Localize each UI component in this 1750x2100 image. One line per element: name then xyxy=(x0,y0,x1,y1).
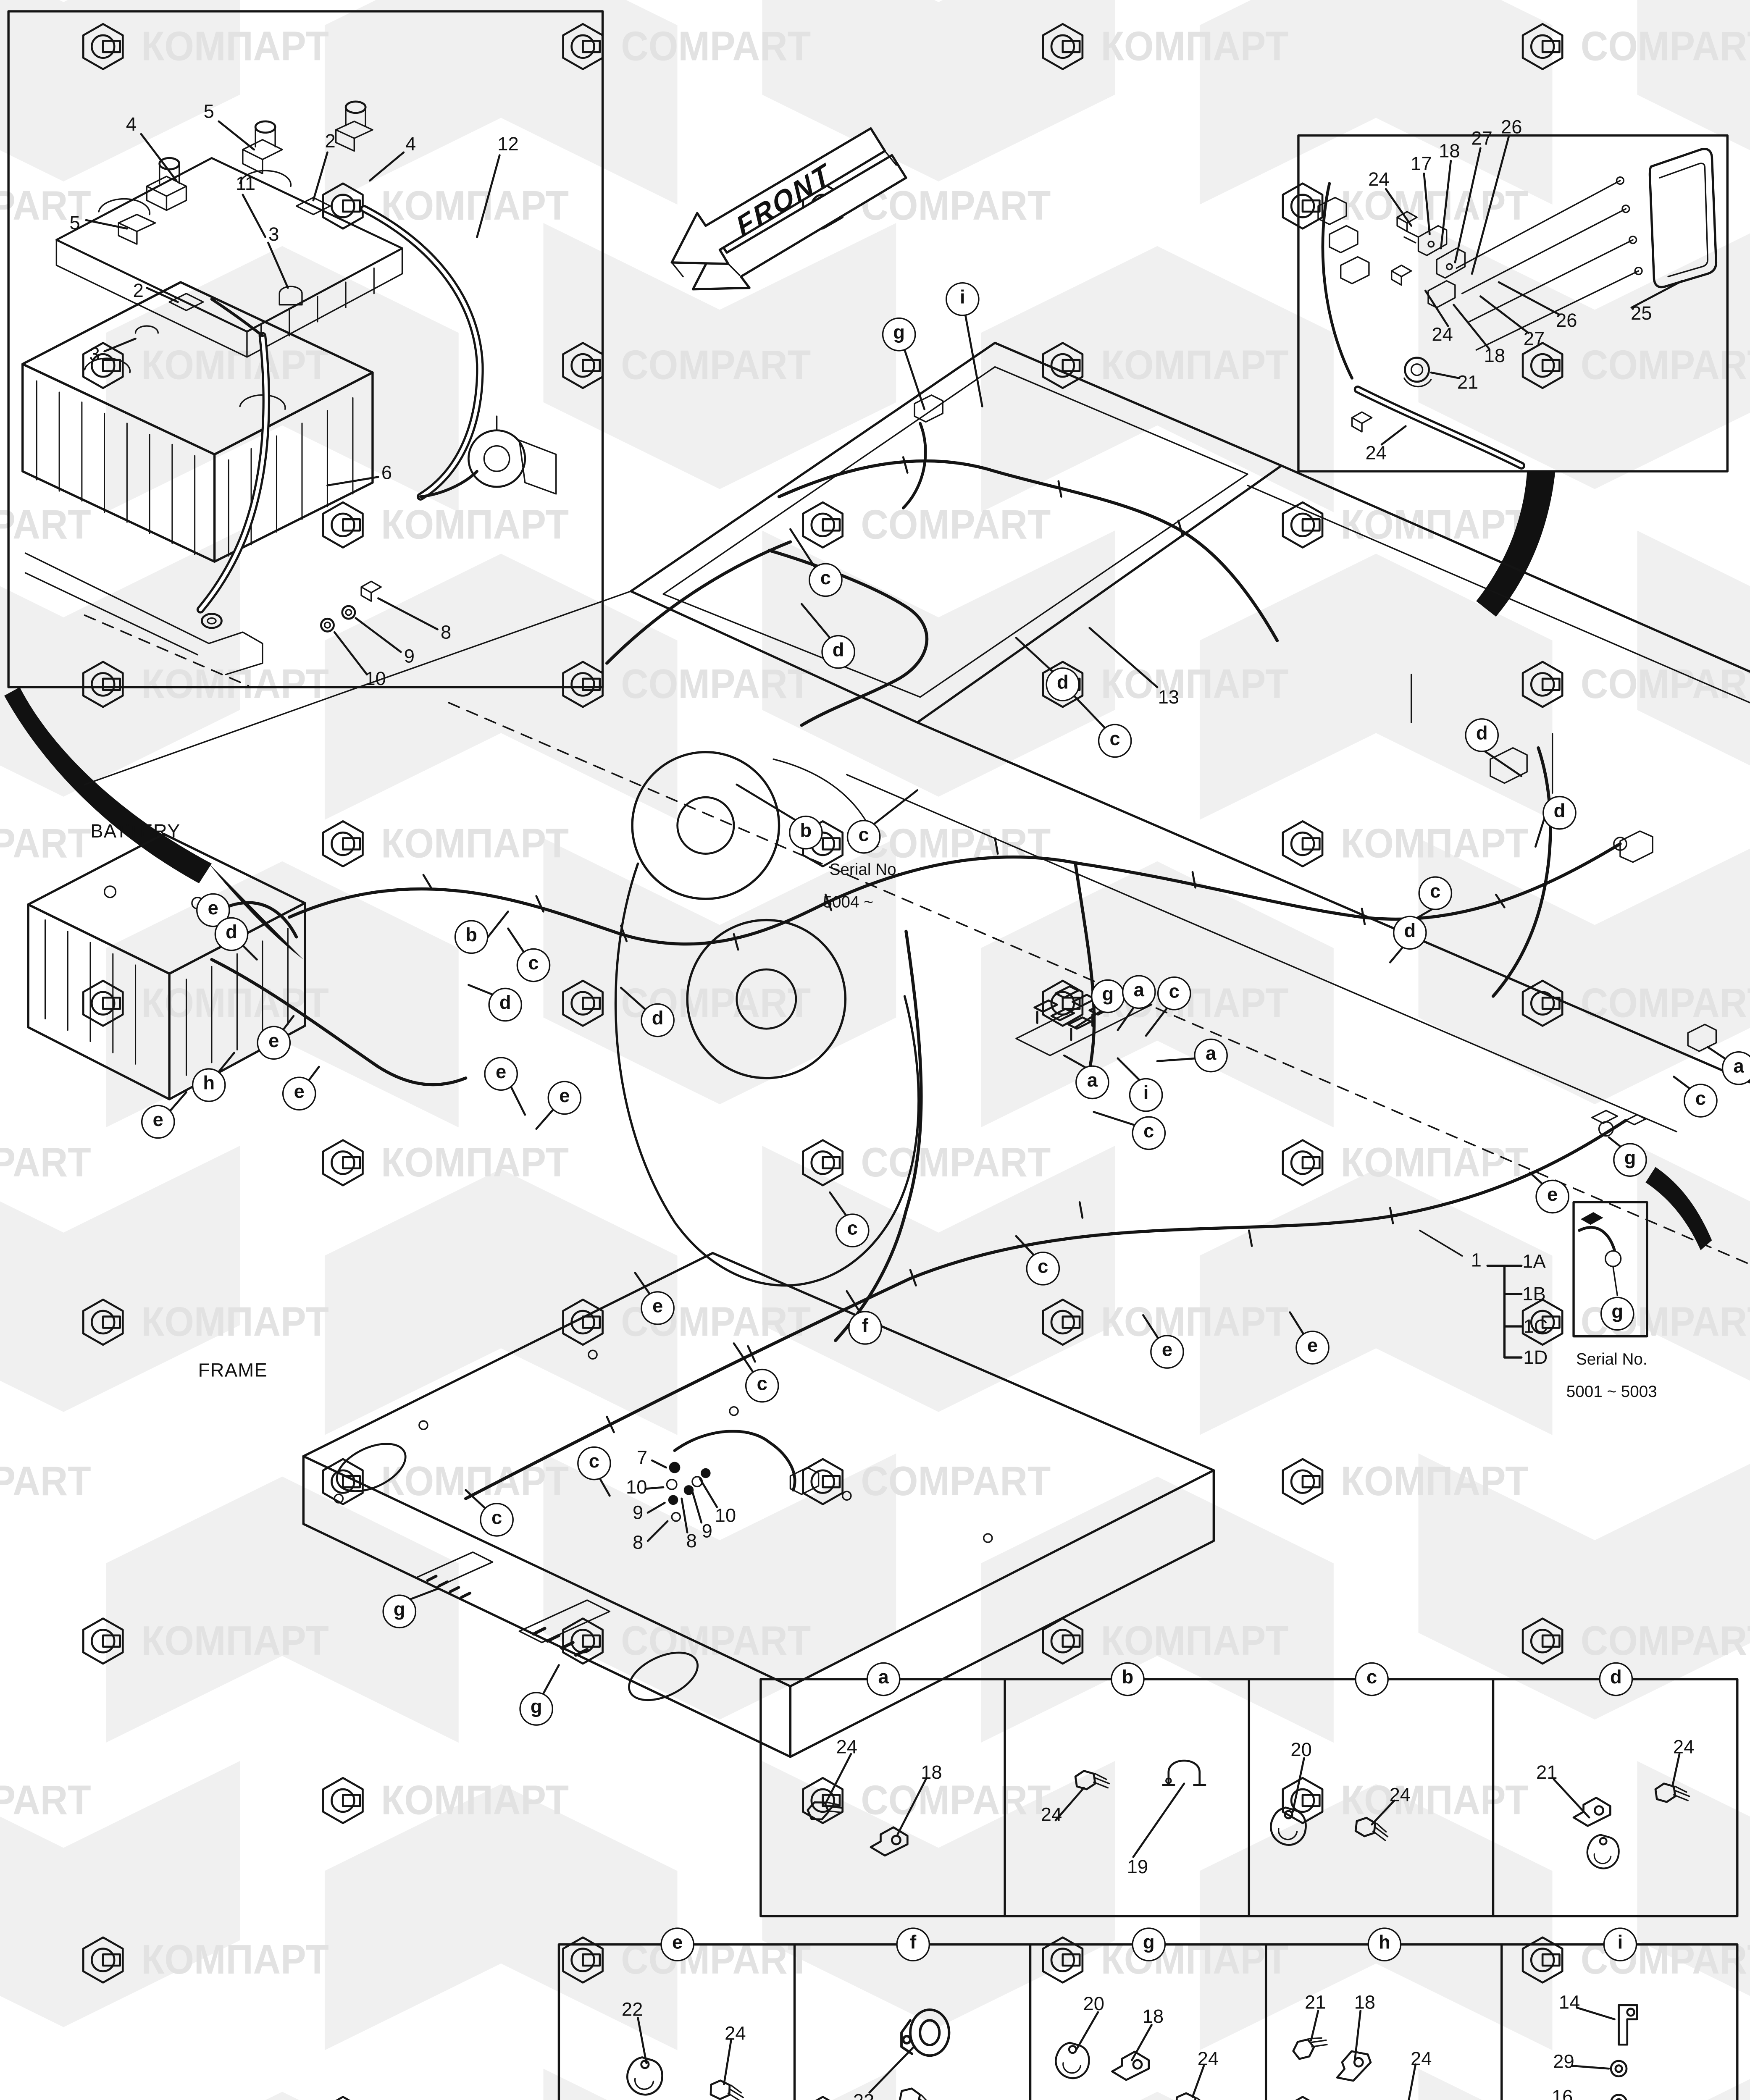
callout-e: e xyxy=(1535,1180,1569,1214)
callout-h: h xyxy=(192,1068,226,1102)
serial-note-main-line2: 5004 ~ xyxy=(823,895,873,911)
frame-label: FRAME xyxy=(198,1360,268,1381)
callout-a: a xyxy=(1075,1066,1109,1100)
harness-part-1D: 1D xyxy=(1523,1347,1548,1368)
part-number-6: 6 xyxy=(381,462,392,483)
part-number-17: 17 xyxy=(1411,153,1432,174)
part-number-27: 27 xyxy=(1471,128,1492,149)
part-number-24: 24 xyxy=(1041,1804,1062,1825)
callout-b: b xyxy=(1111,1662,1145,1696)
callout-e: e xyxy=(1295,1331,1330,1365)
part-number-5: 5 xyxy=(69,213,80,234)
part-number-20: 20 xyxy=(1290,1739,1312,1760)
callout-d: d xyxy=(1599,1662,1633,1696)
callout-e: e xyxy=(141,1105,175,1139)
callout-d: d xyxy=(1465,718,1499,752)
part-number-18: 18 xyxy=(1143,2006,1164,2027)
part-number-24: 24 xyxy=(1198,2048,1219,2069)
part-number-8: 8 xyxy=(441,622,451,643)
part-number-10: 10 xyxy=(626,1477,647,1498)
part-number-24: 24 xyxy=(1368,168,1390,189)
callout-e: e xyxy=(257,1026,291,1060)
callout-g: g xyxy=(1132,1927,1166,1961)
callout-c: c xyxy=(1418,876,1452,910)
callout-a: a xyxy=(1122,975,1156,1009)
serial-note-main-line1: Serial No. xyxy=(830,862,901,879)
callout-d: d xyxy=(641,1003,675,1037)
callout-a: a xyxy=(867,1662,901,1696)
callout-g: g xyxy=(1613,1143,1647,1177)
serial-note-legend-line2: 5001 ~ 5003 xyxy=(1566,1384,1657,1401)
part-number-27: 27 xyxy=(1524,328,1545,349)
part-number-21: 21 xyxy=(1536,1762,1558,1783)
callout-f: f xyxy=(896,1927,930,1961)
part-number-18: 18 xyxy=(1484,345,1506,366)
callout-e: e xyxy=(660,1927,694,1961)
harness-part-1B: 1B xyxy=(1522,1284,1545,1305)
front-arrow-label: FRONT xyxy=(732,158,837,245)
part-number-4: 4 xyxy=(405,133,416,154)
part-number-8: 8 xyxy=(633,1532,643,1553)
part-number-20: 20 xyxy=(1083,1993,1105,2014)
part-number-24: 24 xyxy=(1432,324,1453,345)
callout-e: e xyxy=(641,1291,675,1325)
callout-c: c xyxy=(1026,1252,1060,1286)
part-number-24: 24 xyxy=(836,1736,858,1757)
callout-d: d xyxy=(215,917,249,951)
callout-h: h xyxy=(1368,1927,1402,1961)
callout-e: e xyxy=(282,1076,316,1110)
serial-note-legend-line1: Serial No. xyxy=(1576,1352,1648,1369)
callout-d: d xyxy=(488,988,522,1022)
callout-e: e xyxy=(1150,1335,1184,1369)
part-number-2: 2 xyxy=(325,131,336,152)
part-number-21: 21 xyxy=(1305,1992,1326,2013)
callout-e: e xyxy=(548,1081,582,1115)
part-number-16: 16 xyxy=(1552,2086,1573,2100)
part-number-19: 19 xyxy=(1127,1856,1148,1877)
part-number-8: 8 xyxy=(686,1530,697,1551)
part-number-9: 9 xyxy=(702,1520,712,1541)
callout-d: d xyxy=(1046,667,1080,701)
part-number-10: 10 xyxy=(365,668,386,689)
callout-d: d xyxy=(1542,796,1577,830)
callout-a: a xyxy=(1722,1051,1750,1085)
callout-c: c xyxy=(1355,1662,1389,1696)
callout-c: c xyxy=(1132,1116,1166,1150)
callout-b: b xyxy=(789,816,823,850)
part-number-18: 18 xyxy=(1439,140,1460,161)
harness-part-1C: 1C xyxy=(1523,1316,1548,1337)
callout-c: c xyxy=(836,1213,870,1247)
callout-d: d xyxy=(1393,916,1427,950)
part-number-13: 13 xyxy=(1158,686,1180,707)
part-number-23: 23 xyxy=(853,2090,875,2100)
parts-diagram-page: КОМПАРТCOMPARTКОМПАРТCOMPARTCOMPARTКОМПА… xyxy=(0,0,1750,2100)
callout-g: g xyxy=(882,318,916,352)
callout-c: c xyxy=(577,1446,611,1480)
callout-c: c xyxy=(745,1369,779,1403)
callout-e: e xyxy=(484,1057,518,1091)
callout-i: i xyxy=(1603,1927,1637,1961)
callout-c: c xyxy=(517,948,551,982)
part-number-24: 24 xyxy=(1390,1784,1411,1805)
part-number-5: 5 xyxy=(204,101,214,122)
part-number-11: 11 xyxy=(236,173,255,194)
part-number-25: 25 xyxy=(1631,303,1652,324)
callout-a: a xyxy=(1194,1039,1228,1073)
annotation-layer: FRONTBATTERYFRAMESerial No.5004 ~Serial … xyxy=(0,0,1750,2100)
harness-part-1: 1 xyxy=(1471,1249,1482,1270)
part-number-18: 18 xyxy=(1354,1992,1376,2013)
callout-g: g xyxy=(382,1594,416,1628)
part-number-24: 24 xyxy=(725,2023,746,2044)
part-number-24: 24 xyxy=(1673,1736,1695,1757)
part-number-2: 2 xyxy=(133,280,144,301)
battery-label: BATTERY xyxy=(90,821,180,842)
part-number-9: 9 xyxy=(633,1502,643,1523)
callout-b: b xyxy=(455,920,489,954)
callout-c: c xyxy=(1684,1084,1718,1118)
callout-c: c xyxy=(847,820,881,854)
part-number-29: 29 xyxy=(1553,2051,1574,2072)
callout-f: f xyxy=(848,1311,882,1345)
callout-d: d xyxy=(821,635,855,669)
part-number-26: 26 xyxy=(1556,310,1577,331)
callout-g: g xyxy=(1600,1297,1634,1331)
callout-g: g xyxy=(519,1692,553,1726)
part-number-14: 14 xyxy=(1559,1992,1580,2013)
part-number-3: 3 xyxy=(268,224,279,245)
part-number-12: 12 xyxy=(497,133,519,154)
callout-c: c xyxy=(480,1503,514,1537)
callout-c: c xyxy=(809,563,843,597)
part-number-18: 18 xyxy=(921,1762,942,1783)
callout-i: i xyxy=(946,282,980,316)
part-number-22: 22 xyxy=(622,1999,643,2020)
part-number-7: 7 xyxy=(637,1447,647,1468)
callout-c: c xyxy=(1157,976,1191,1011)
part-number-21: 21 xyxy=(1457,372,1479,393)
part-number-24: 24 xyxy=(1365,442,1387,463)
part-number-4: 4 xyxy=(126,113,137,134)
part-number-24: 24 xyxy=(1411,2048,1432,2069)
callout-c: c xyxy=(1098,724,1132,758)
callout-g: g xyxy=(1091,979,1125,1013)
callout-i: i xyxy=(1129,1078,1163,1112)
part-number-3: 3 xyxy=(89,344,100,365)
part-number-10: 10 xyxy=(715,1505,736,1526)
part-number-26: 26 xyxy=(1501,116,1522,137)
part-number-9: 9 xyxy=(404,646,415,667)
harness-part-1A: 1A xyxy=(1522,1251,1545,1272)
